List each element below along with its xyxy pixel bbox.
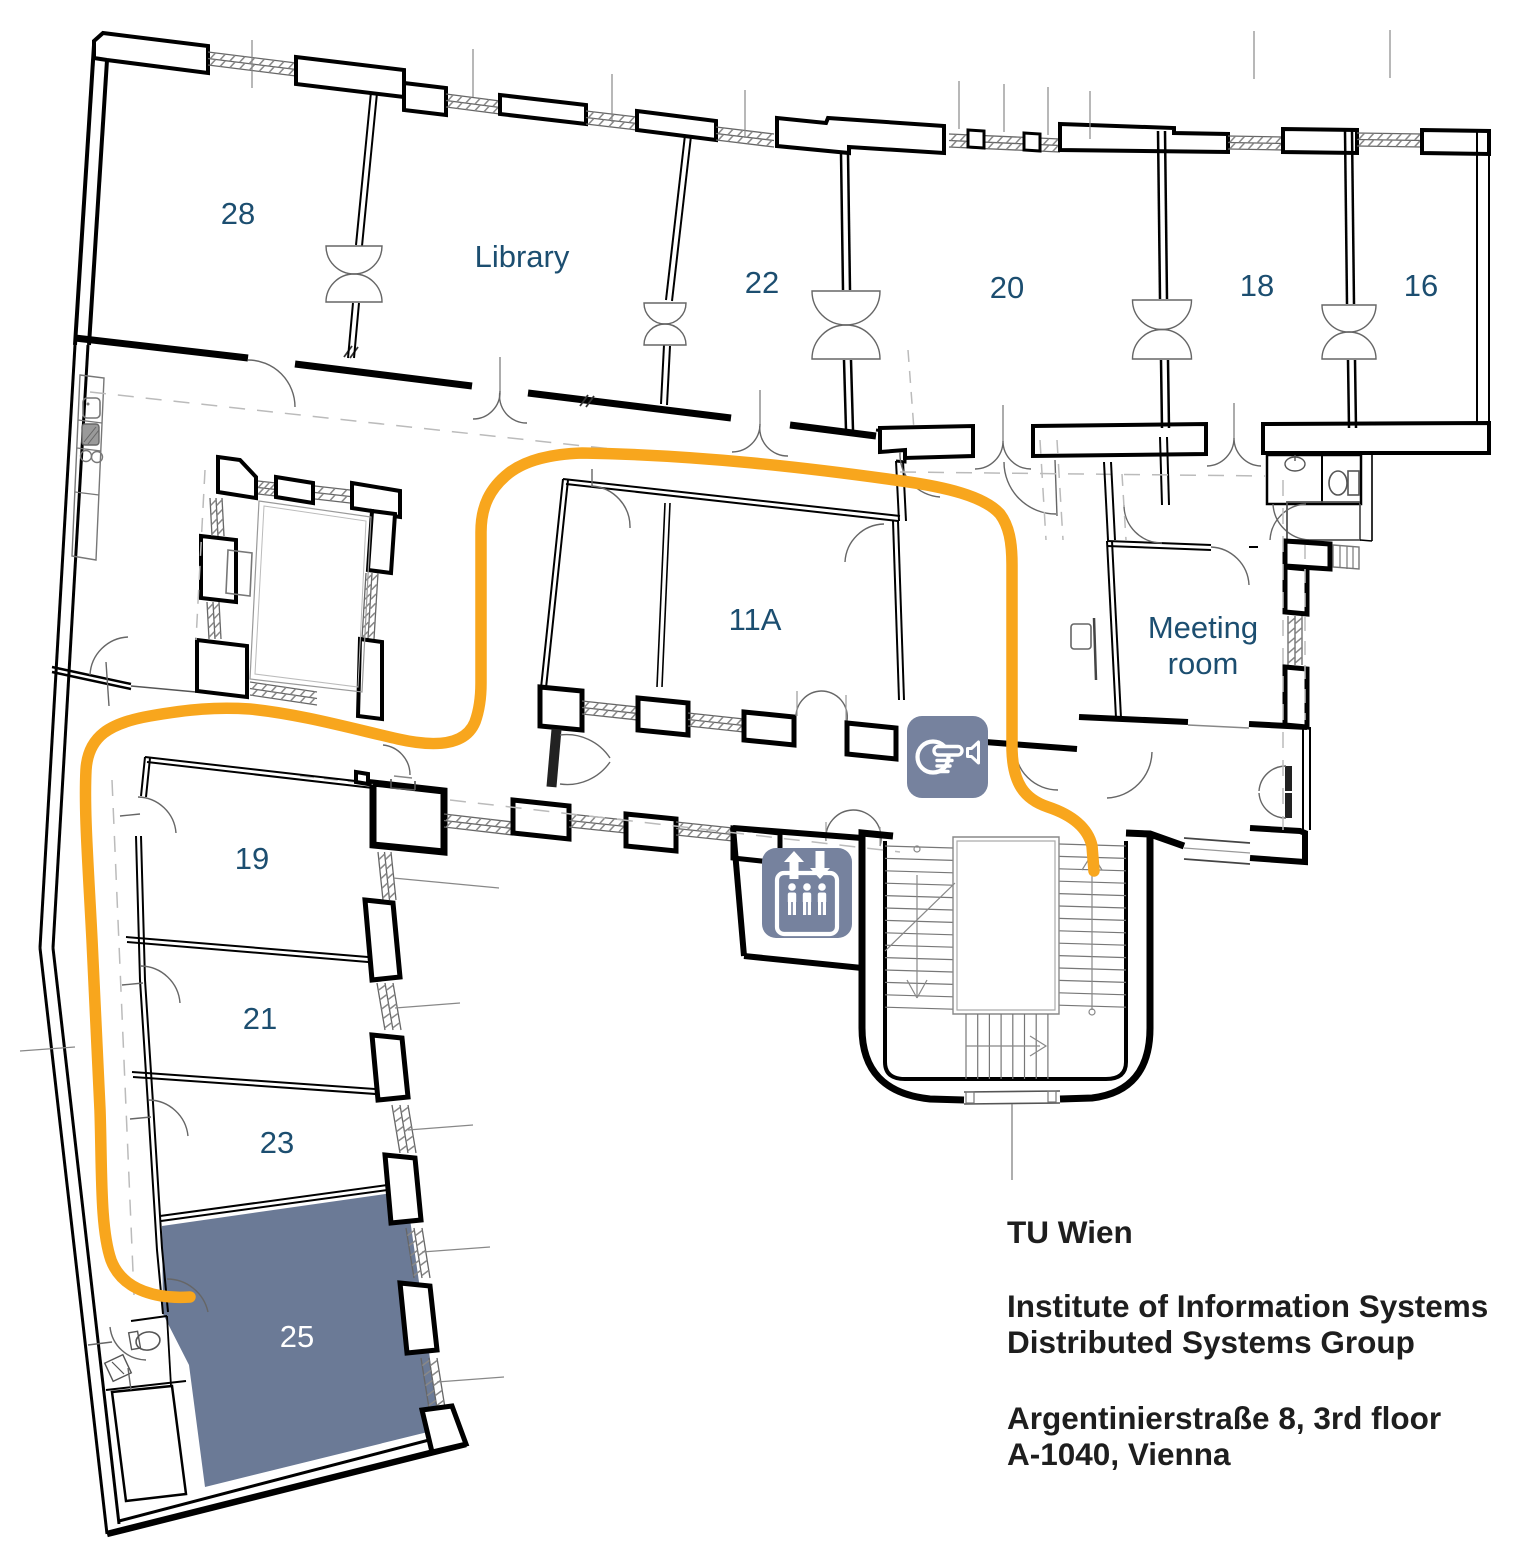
svg-text:20: 20 xyxy=(990,270,1024,305)
svg-text:11A: 11A xyxy=(729,602,782,637)
svg-text:room: room xyxy=(1168,646,1239,681)
svg-text:Meeting: Meeting xyxy=(1148,610,1258,645)
svg-text:23: 23 xyxy=(260,1125,294,1160)
svg-text:22: 22 xyxy=(745,265,779,300)
svg-text:21: 21 xyxy=(243,1001,277,1036)
svg-text:Institute of Information Syste: Institute of Information Systems xyxy=(1007,1288,1488,1324)
svg-text:28: 28 xyxy=(221,196,255,231)
svg-text:Argentinierstraße 8, 3rd floor: Argentinierstraße 8, 3rd floor xyxy=(1007,1400,1441,1436)
svg-text:18: 18 xyxy=(1240,268,1274,303)
svg-text:Distributed Systems Group: Distributed Systems Group xyxy=(1007,1324,1415,1360)
svg-text:25: 25 xyxy=(280,1319,314,1354)
svg-text:19: 19 xyxy=(235,841,269,876)
svg-text:Library: Library xyxy=(475,239,570,274)
svg-text:16: 16 xyxy=(1404,268,1438,303)
svg-text:A-1040, Vienna: A-1040, Vienna xyxy=(1007,1436,1231,1472)
svg-text:TU Wien: TU Wien xyxy=(1007,1214,1133,1250)
